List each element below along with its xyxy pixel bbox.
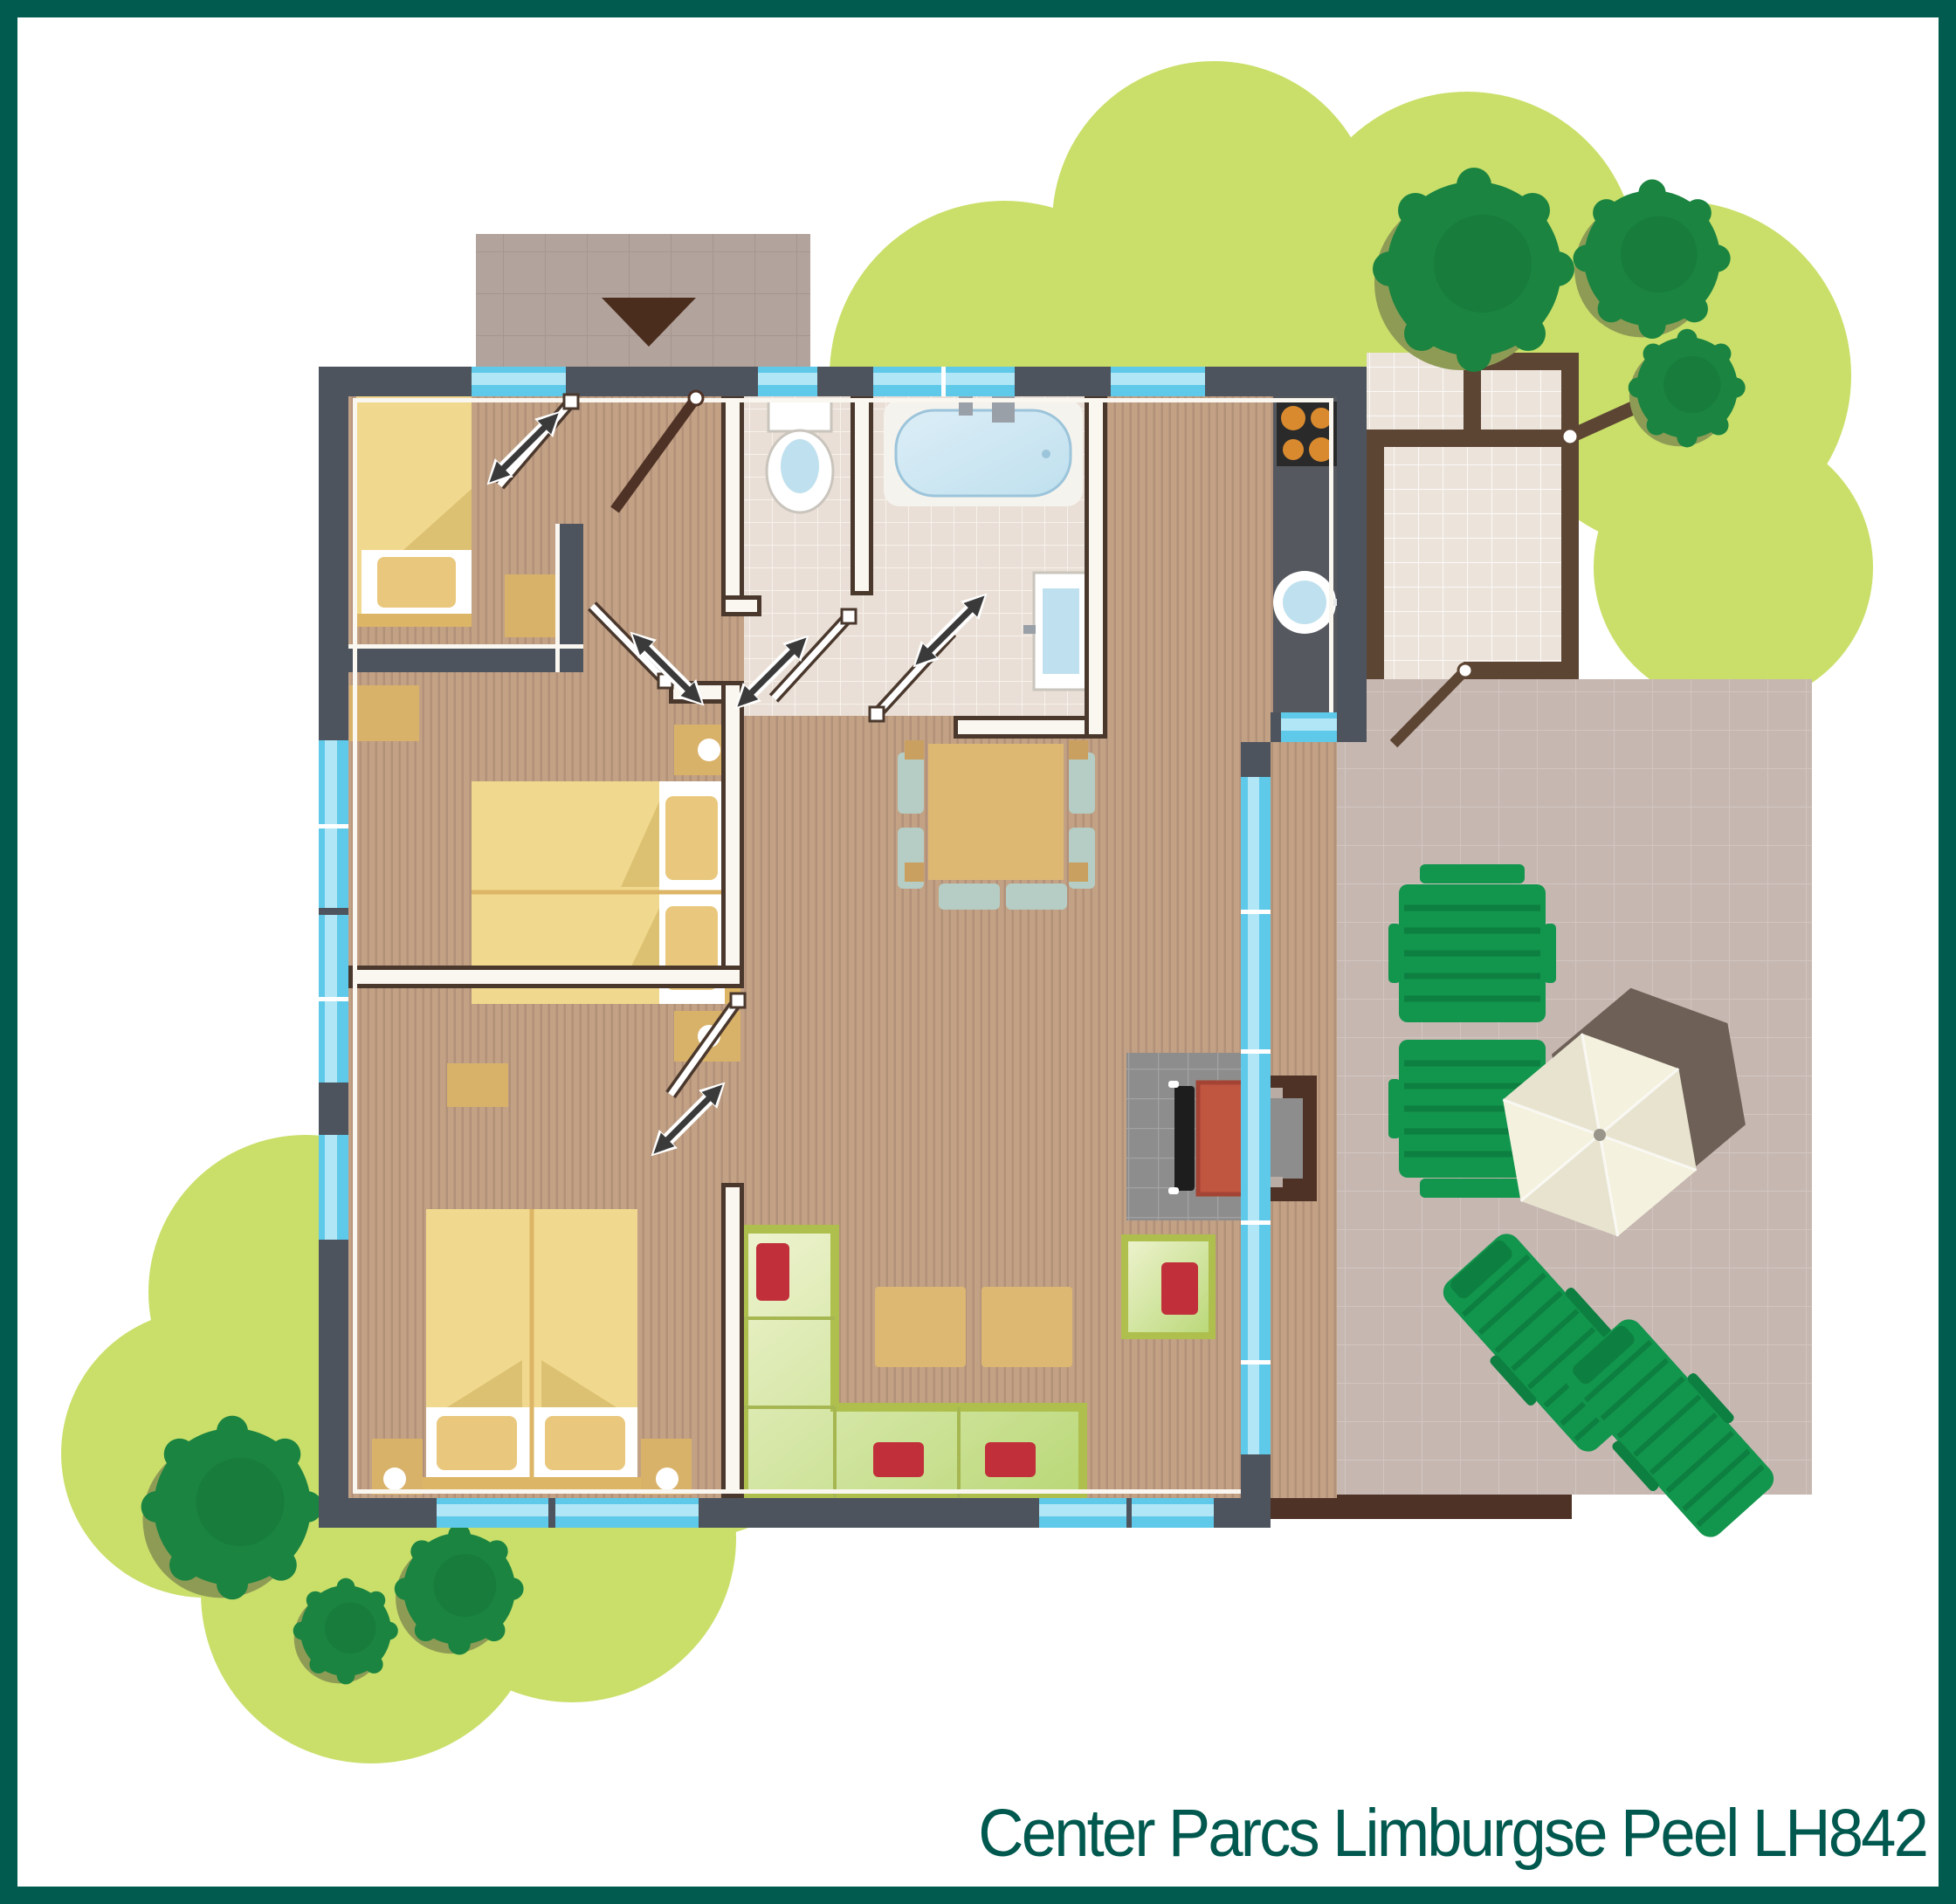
bedroom3-double-bed <box>417 1209 644 1493</box>
kitchen-counter <box>1273 396 1345 712</box>
pouf <box>981 1287 1072 1367</box>
page: Center Parcs Limburgse Peel LH842 <box>0 0 1956 1904</box>
fireplace-chimney <box>1271 1076 1317 1201</box>
dining-chair <box>1006 883 1067 910</box>
tap-icon <box>959 395 973 416</box>
glass-wall-right <box>1241 742 1271 1498</box>
bedroom1-wall-bottom <box>348 648 583 672</box>
burner-icon <box>1281 406 1305 430</box>
bedroom1-single-bed <box>356 388 472 627</box>
footstool-pillow <box>1161 1262 1198 1315</box>
bathtub <box>884 395 1083 506</box>
entrance-porch <box>476 234 810 381</box>
sofa-pillow <box>756 1243 789 1301</box>
toilet <box>767 400 833 512</box>
tap-icon <box>1023 625 1036 634</box>
shed-wall-bottom-b <box>1464 662 1579 679</box>
fireplace-grate <box>1174 1086 1195 1191</box>
dining-table <box>928 744 1064 880</box>
plan-title: Center Parcs Limburgse Peel LH842 <box>978 1795 1926 1873</box>
bedroom2-cabinet-bottom <box>447 1063 508 1107</box>
terrace-edge <box>1271 1495 1572 1519</box>
fireplace <box>1126 1053 1246 1220</box>
shed-wall-left <box>1367 430 1384 679</box>
dining-chair <box>898 753 924 814</box>
washbasin <box>1023 573 1086 690</box>
pouf <box>875 1287 966 1367</box>
sofa-pillow <box>985 1442 1036 1477</box>
burner-icon <box>1283 439 1304 460</box>
shed-wall-right <box>1561 353 1579 679</box>
lamp-icon <box>383 1468 406 1490</box>
wall-right-upper <box>1337 367 1367 742</box>
dining-chair <box>1069 753 1095 814</box>
shed-wall-bottom-a <box>1367 662 1384 679</box>
floor-plan-svg <box>0 0 1956 1904</box>
burner-icon <box>1311 408 1332 429</box>
bedroom2-cabinet-top <box>349 685 419 741</box>
dining-chair <box>939 883 1000 910</box>
shed-wall-divider-h <box>1367 430 1579 447</box>
fireplace-firebox <box>1198 1083 1246 1194</box>
lamp-icon <box>656 1468 678 1490</box>
lamp-icon <box>698 739 720 761</box>
footstool <box>1125 1238 1212 1336</box>
sofa-pillow <box>873 1442 924 1477</box>
bedroom1-cabinet <box>505 574 559 637</box>
shed-door-hinge <box>1458 663 1472 677</box>
